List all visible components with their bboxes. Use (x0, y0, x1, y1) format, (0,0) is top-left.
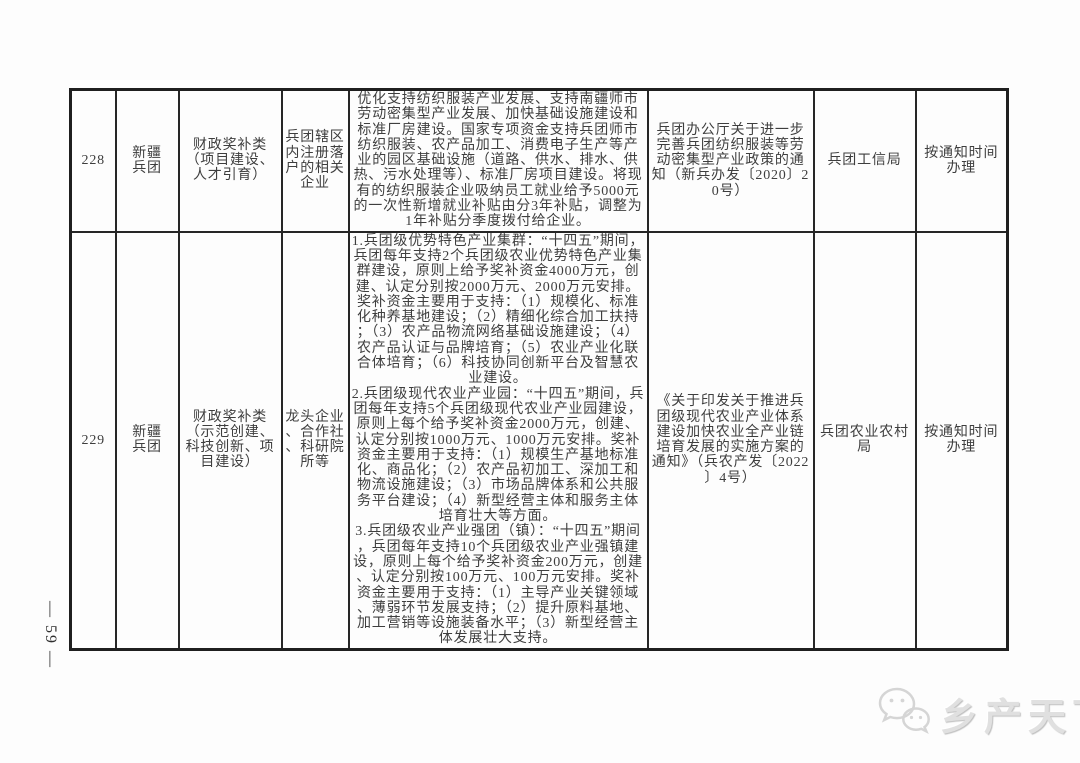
cell-processing-time: 按通知时间 办理 (916, 232, 1008, 650)
watermark: 乡产天下 (872, 684, 1080, 742)
cell-row-number: 229 (71, 232, 116, 650)
cell-policy-content: 优化支持纺织服装产业发展、支持南疆师市劳动密集型产业发展、加快基础设施建设和标准… (349, 90, 648, 232)
cell-processing-time: 按通知时间 办理 (916, 90, 1008, 232)
cell-target: 龙头企业、合作社、科研院所等 (282, 232, 349, 650)
cell-target: 兵团辖区内注册落户的相关企业 (282, 90, 349, 232)
cell-category: 财政奖补类 （示范创建、 科技创新、项 目建设） (179, 232, 282, 650)
cell-policy-content: 1.兵团级优势特色产业集群：“十四五”期间，兵团每年支持2个兵团级农业优势特色产… (349, 232, 648, 650)
page-number: — 59 — (37, 595, 59, 675)
cell-department: 兵团农业农村局 (814, 232, 916, 650)
chat-bubbles-icon (872, 684, 932, 742)
cell-policy-document: 兵团办公厅关于进一步完善兵团纺织服装等劳动密集型产业政策的通知（新兵办发〔202… (648, 90, 814, 232)
table-row-229: 229 新疆 兵团 财政奖补类 （示范创建、 科技创新、项 目建设） 龙头企业、… (71, 232, 1008, 650)
cell-policy-document: 《关于印发关于推进兵团级现代农业产业体系建设加快农业全产业链培育发展的实施方案的… (648, 232, 814, 650)
cell-row-number: 228 (71, 90, 116, 232)
table-row-228: 228 新疆 兵团 财政奖补类 （项目建设、 人才引育） 兵团辖区内注册落户的相… (71, 90, 1008, 232)
cell-category: 财政奖补类 （项目建设、 人才引育） (179, 90, 282, 232)
cell-department: 兵团工信局 (814, 90, 916, 232)
cell-region: 新疆 兵团 (116, 232, 179, 650)
watermark-text: 乡产天下 (940, 686, 1080, 741)
cell-region: 新疆 兵团 (116, 90, 179, 232)
policy-table: 228 新疆 兵团 财政奖补类 （项目建设、 人才引育） 兵团辖区内注册落户的相… (69, 88, 1009, 651)
